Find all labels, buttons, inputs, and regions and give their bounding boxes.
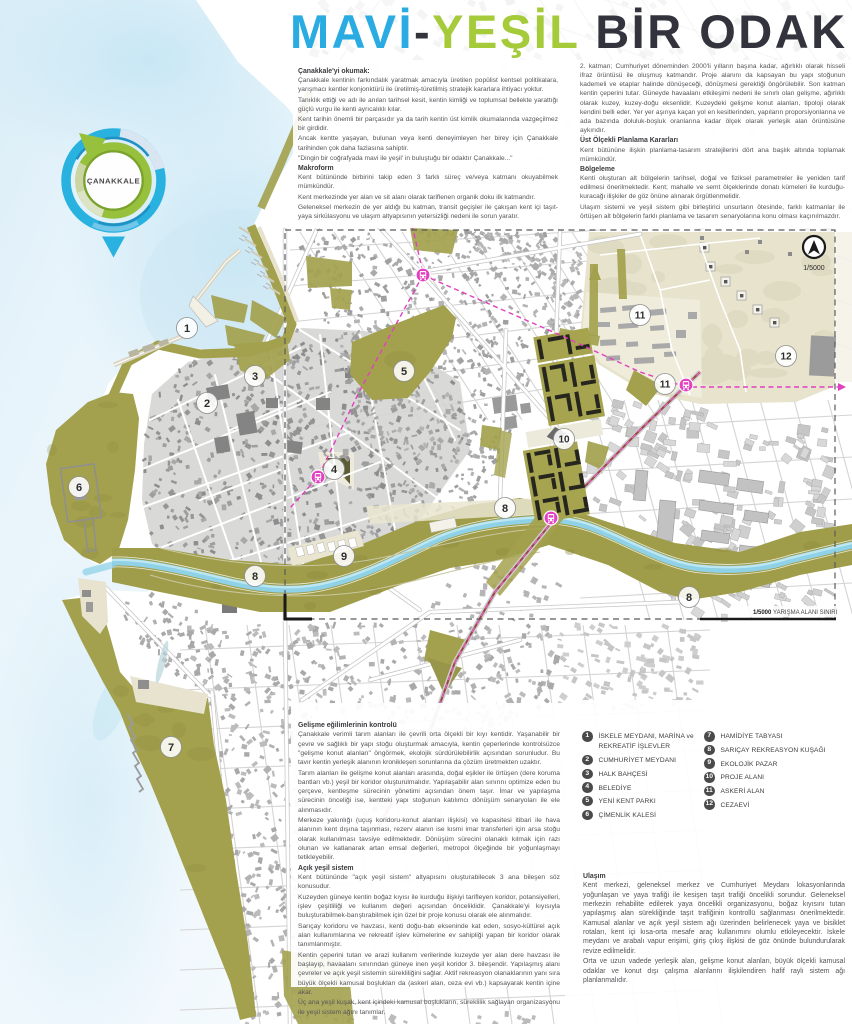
svg-text:8: 8 [252, 571, 258, 583]
svg-text:6: 6 [76, 482, 82, 494]
svg-text:2: 2 [204, 398, 210, 410]
svg-text:5: 5 [401, 366, 407, 378]
svg-text:1: 1 [184, 323, 190, 335]
svg-text:8: 8 [686, 592, 692, 604]
svg-text:12: 12 [780, 352, 792, 363]
svg-text:11: 11 [635, 311, 646, 322]
svg-text:ÇANAKKALE: ÇANAKKALE [87, 177, 140, 186]
svg-text:4: 4 [331, 464, 338, 476]
svg-text:1/5000: 1/5000 [803, 265, 825, 272]
svg-text:9: 9 [341, 551, 347, 563]
svg-text:10: 10 [558, 435, 570, 446]
svg-text:11: 11 [660, 380, 671, 391]
svg-text:3: 3 [252, 371, 258, 383]
svg-text:8: 8 [502, 503, 508, 515]
svg-text:7: 7 [168, 742, 174, 754]
svg-text:1/5000 YARIŞMA ALANI SINIRI: 1/5000 YARIŞMA ALANI SINIRI [753, 610, 838, 616]
